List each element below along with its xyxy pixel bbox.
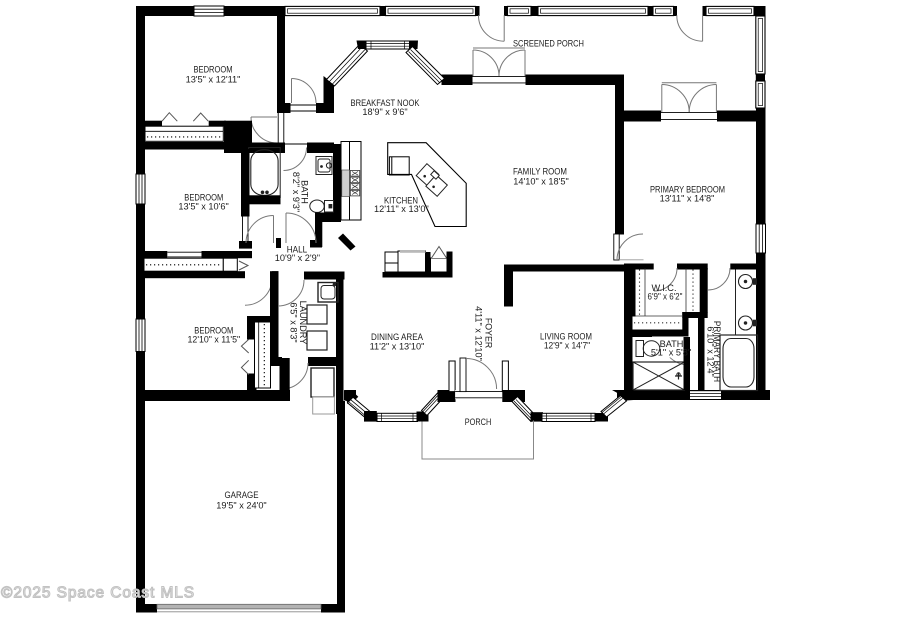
svg-text:18'9" x 9'6": 18'9" x 9'6" [362,107,407,117]
svg-text:13'5" x 10'6": 13'5" x 10'6" [178,202,228,212]
svg-text:10'9" x 2'9": 10'9" x 2'9" [275,253,320,263]
svg-text:8'2" x 9'3": 8'2" x 9'3" [291,172,301,212]
svg-text:12'9" x 14'7": 12'9" x 14'7" [544,340,590,350]
svg-text:FOYER: FOYER [483,318,493,349]
svg-text:6'5" x 8'3": 6'5" x 8'3" [289,302,299,342]
svg-text:PORCH: PORCH [465,416,492,427]
svg-text:5'1" x 5'8": 5'1" x 5'8" [651,348,691,358]
svg-text:19'5" x 24'0": 19'5" x 24'0" [216,501,266,511]
svg-text:LAUNDRY: LAUNDRY [298,301,308,345]
svg-text:GARAGE: GARAGE [224,489,258,500]
svg-text:12'11" x 13'0": 12'11" x 13'0" [374,204,429,214]
svg-text:6'9" x 6'2": 6'9" x 6'2" [648,291,683,302]
svg-text:SCREENED PORCH: SCREENED PORCH [513,38,584,49]
svg-text:12'10" x 11'5": 12'10" x 11'5" [188,334,241,344]
svg-text:6'10" x 12'4": 6'10" x 12'4" [706,326,716,376]
svg-text:14'10" x 18'5": 14'10" x 18'5" [513,177,569,187]
svg-text:BEDROOM: BEDROOM [194,64,233,75]
svg-text:13'5" x 12'11": 13'5" x 12'11" [186,74,241,84]
svg-text:4'11" x 12'10": 4'11" x 12'10" [474,306,484,361]
svg-text:13'11" x 14'8": 13'11" x 14'8" [660,194,715,204]
svg-text:©2025 Space Coast MLS: ©2025 Space Coast MLS [1,585,195,602]
svg-text:FAMILY ROOM: FAMILY ROOM [513,166,567,177]
svg-text:11'2" x 13'10": 11'2" x 13'10" [370,341,425,351]
